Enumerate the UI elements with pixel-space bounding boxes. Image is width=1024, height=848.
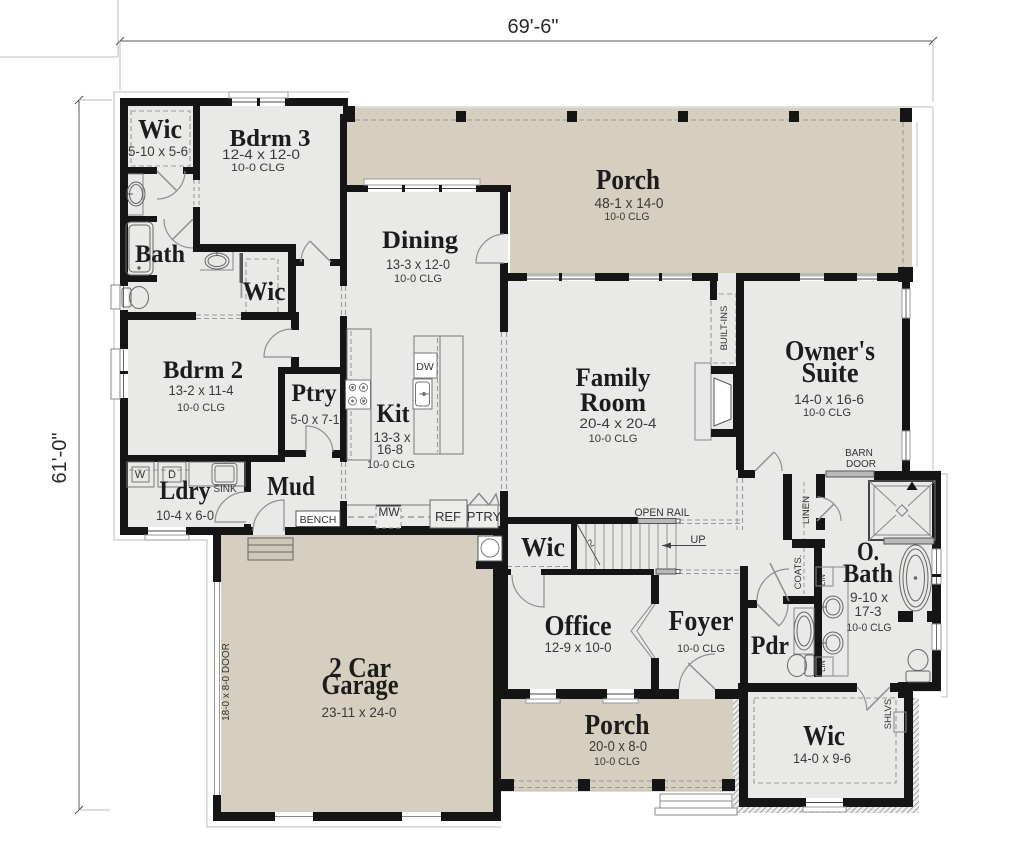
svg-text:Pdr: Pdr <box>751 631 789 660</box>
svg-text:20-0 x 8-0: 20-0 x 8-0 <box>589 738 647 755</box>
svg-text:SHLVS: SHLVS <box>883 699 894 729</box>
svg-text:17-3: 17-3 <box>855 603 882 619</box>
svg-text:10-0 CLG: 10-0 CLG <box>394 273 442 285</box>
svg-text:10-0 CLG: 10-0 CLG <box>803 407 851 419</box>
svg-text:Porch: Porch <box>596 164 660 196</box>
svg-text:D: D <box>168 469 176 481</box>
svg-text:LINEN: LINEN <box>801 496 812 524</box>
svg-text:10-0 CLG: 10-0 CLG <box>589 433 638 445</box>
svg-text:23-11 x 24-0: 23-11 x 24-0 <box>322 704 397 720</box>
svg-text:69'-6": 69'-6" <box>508 16 559 38</box>
svg-text:10-0 CLG: 10-0 CLG <box>177 402 225 414</box>
svg-text:W: W <box>135 469 146 481</box>
svg-text:18-0 x 8-0 DOOR: 18-0 x 8-0 DOOR <box>221 643 232 721</box>
svg-text:Bath: Bath <box>843 559 893 588</box>
svg-text:Office: Office <box>545 611 612 642</box>
svg-text:48-1 x 14-0: 48-1 x 14-0 <box>595 195 664 212</box>
svg-text:BENCH: BENCH <box>300 514 337 526</box>
svg-text:Wic: Wic <box>138 114 182 144</box>
svg-text:13-2 x 11-4: 13-2 x 11-4 <box>169 382 234 398</box>
svg-text:BARN: BARN <box>845 448 873 459</box>
svg-text:10-0 CLG: 10-0 CLG <box>605 211 650 223</box>
svg-text:DOOR: DOOR <box>846 459 876 470</box>
svg-text:Wic: Wic <box>803 721 845 752</box>
svg-text:BUILT-INS: BUILT-INS <box>719 306 730 351</box>
svg-text:OPEN RAIL: OPEN RAIL <box>635 507 690 519</box>
svg-text:Mud: Mud <box>267 471 315 501</box>
svg-text:Ptry: Ptry <box>292 380 337 407</box>
svg-text:Bdrm 2: Bdrm 2 <box>163 357 243 384</box>
svg-text:UP: UP <box>690 534 705 546</box>
svg-text:Wic: Wic <box>521 532 565 562</box>
svg-text:MW: MW <box>378 505 400 519</box>
svg-text:16-8: 16-8 <box>377 441 403 457</box>
svg-text:10-0 CLG: 10-0 CLG <box>594 756 640 768</box>
svg-text:LIN: LIN <box>818 660 827 672</box>
svg-text:13-3 x 12-0: 13-3 x 12-0 <box>386 256 450 272</box>
svg-text:Dining: Dining <box>382 227 459 254</box>
svg-text:14-0 x 16-6: 14-0 x 16-6 <box>794 391 864 407</box>
svg-text:Suite: Suite <box>802 358 859 389</box>
svg-text:12-4 x 12-0: 12-4 x 12-0 <box>222 146 300 162</box>
svg-text:Bath: Bath <box>135 241 185 268</box>
svg-text:10-0 CLG: 10-0 CLG <box>677 643 725 655</box>
svg-text:20-4 x 20-4: 20-4 x 20-4 <box>580 415 657 431</box>
svg-text:PTRY: PTRY <box>467 509 502 524</box>
svg-text:DW: DW <box>416 361 434 373</box>
svg-text:10-0 CLG: 10-0 CLG <box>367 459 415 471</box>
svg-text:10-0 CLG: 10-0 CLG <box>231 162 285 174</box>
svg-text:Garage: Garage <box>322 670 399 701</box>
svg-text:Kit: Kit <box>377 399 410 428</box>
svg-text:61'-0": 61'-0" <box>49 433 71 484</box>
svg-text:5-0 x 7-1: 5-0 x 7-1 <box>291 411 340 427</box>
svg-text:10-0 CLG: 10-0 CLG <box>847 622 892 634</box>
svg-text:5-10 x 5-6: 5-10 x 5-6 <box>128 143 188 159</box>
svg-text:REF: REF <box>435 509 461 524</box>
svg-text:10-4 x 6-0: 10-4 x 6-0 <box>156 507 214 523</box>
svg-text:Foyer: Foyer <box>669 606 734 637</box>
svg-text:12-9 x 10-0: 12-9 x 10-0 <box>545 639 612 655</box>
svg-text:Wic: Wic <box>243 277 286 306</box>
svg-text:COATS.: COATS. <box>793 555 804 590</box>
svg-text:LIN: LIN <box>818 574 827 586</box>
svg-text:Porch: Porch <box>585 709 650 741</box>
svg-text:14-0 x 9-6: 14-0 x 9-6 <box>793 750 851 766</box>
svg-text:SINK: SINK <box>213 484 237 495</box>
svg-text:Room: Room <box>580 388 646 417</box>
